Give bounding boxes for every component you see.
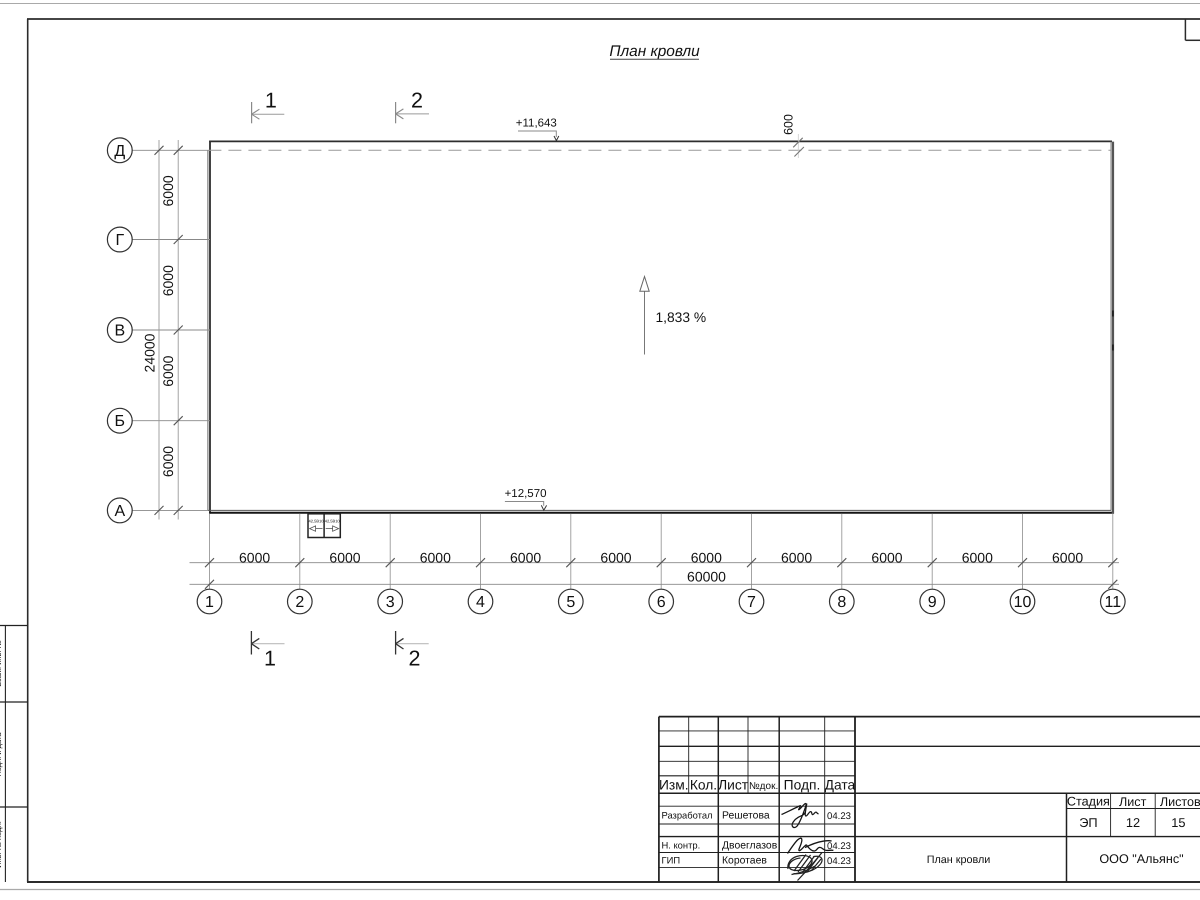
svg-text:5: 5: [566, 594, 575, 611]
svg-text:А: А: [114, 503, 125, 520]
svg-text:60000: 60000: [687, 568, 726, 584]
svg-text:04.23: 04.23: [827, 811, 851, 822]
svg-text:План кровли: План кровли: [927, 854, 991, 866]
svg-text:Б: Б: [115, 413, 126, 430]
svg-text:Д: Д: [114, 143, 125, 160]
svg-text:В: В: [114, 323, 125, 340]
svg-text:1: 1: [264, 646, 276, 670]
svg-text:Коротаев: Коротаев: [722, 856, 767, 867]
svg-text:2: 2: [295, 594, 304, 611]
svg-text:6000: 6000: [871, 549, 902, 565]
svg-text:6000: 6000: [781, 549, 812, 565]
svg-text:6000: 6000: [160, 355, 176, 386]
svg-text:6: 6: [657, 594, 666, 611]
svg-text:Подп. и дата: Подп. и дата: [0, 732, 3, 777]
svg-text:6000: 6000: [160, 265, 176, 296]
svg-text:2: 2: [409, 646, 421, 670]
svg-text:6000: 6000: [239, 549, 270, 565]
svg-text:Дата: Дата: [825, 777, 856, 792]
svg-text:+11,643: +11,643: [516, 117, 557, 129]
svg-text:1: 1: [205, 594, 214, 611]
svg-text:6000: 6000: [600, 549, 631, 565]
svg-text:Подп.: Подп.: [784, 777, 821, 792]
svg-text:ООО "Альянс": ООО "Альянс": [1099, 852, 1183, 866]
svg-text:15: 15: [1171, 815, 1185, 830]
svg-text:Листов: Листов: [1160, 795, 1200, 809]
svg-text:10: 10: [1014, 594, 1032, 611]
svg-text:Кол.: Кол.: [690, 777, 717, 792]
svg-text:Изм.: Изм.: [659, 777, 689, 792]
svg-text:Взам. инв. №: Взам. инв. №: [0, 640, 3, 686]
svg-text:ЭП: ЭП: [1079, 815, 1097, 830]
svg-text:1: 1: [265, 88, 277, 112]
svg-text:12: 12: [1126, 815, 1140, 830]
svg-text:№док.: №док.: [749, 781, 778, 792]
svg-text:6000: 6000: [1052, 549, 1083, 565]
svg-text:1,833 %: 1,833 %: [656, 310, 707, 325]
svg-text:600: 600: [782, 114, 796, 135]
svg-text:42,5В10: 42,5В10: [309, 518, 325, 523]
svg-text:Н. контр.: Н. контр.: [662, 839, 701, 850]
svg-text:6000: 6000: [420, 549, 451, 565]
svg-text:04.23: 04.23: [827, 856, 851, 867]
svg-text:+12,570: +12,570: [505, 488, 547, 500]
svg-text:Двоеглазов: Двоеглазов: [722, 841, 778, 852]
svg-text:6000: 6000: [962, 549, 993, 565]
svg-text:ГИП: ГИП: [662, 854, 681, 865]
svg-text:2: 2: [411, 89, 423, 113]
svg-text:Г: Г: [115, 232, 124, 249]
svg-text:4: 4: [476, 594, 485, 611]
svg-text:3: 3: [386, 594, 395, 611]
svg-text:42,5В10: 42,5В10: [325, 518, 341, 523]
svg-text:6000: 6000: [691, 549, 722, 565]
svg-text:8: 8: [837, 594, 846, 611]
svg-text:24000: 24000: [141, 333, 157, 372]
svg-text:7: 7: [747, 594, 756, 611]
svg-text:6000: 6000: [510, 549, 541, 565]
svg-text:Стадия: Стадия: [1067, 795, 1110, 809]
svg-text:11: 11: [1104, 594, 1121, 611]
svg-text:Инв. № подл.: Инв. № подл.: [0, 821, 3, 868]
svg-text:Разработал: Разработал: [662, 809, 713, 820]
svg-text:Лист: Лист: [1119, 795, 1147, 809]
svg-text:Лист: Лист: [718, 777, 749, 792]
svg-text:6000: 6000: [160, 446, 176, 477]
svg-text:План кровли: План кровли: [609, 43, 700, 60]
svg-text:Решетова: Решетова: [722, 811, 770, 822]
svg-text:9: 9: [928, 594, 937, 611]
svg-text:6000: 6000: [329, 549, 360, 565]
svg-text:6000: 6000: [160, 175, 176, 206]
